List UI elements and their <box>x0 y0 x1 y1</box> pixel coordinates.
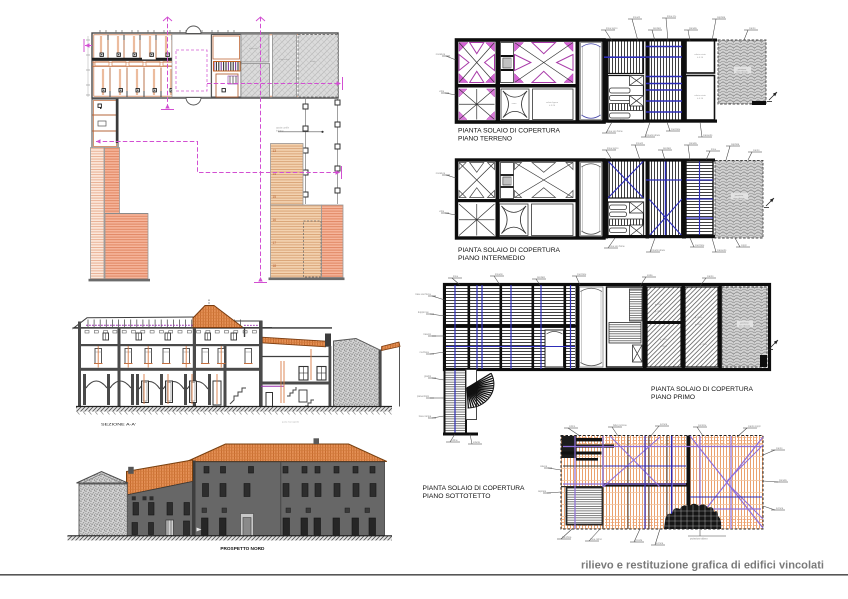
svg-text:mezzane: mezzane <box>577 274 587 276</box>
svg-text:pianerottolo: pianerottolo <box>417 395 430 398</box>
svg-text:trave uso fiume: trave uso fiume <box>607 130 623 133</box>
svg-text:doppio tav.: doppio tav. <box>418 311 429 314</box>
svg-text:p. 25%: p. 25% <box>660 346 667 348</box>
svg-text:fienile: fienile <box>310 61 316 63</box>
svg-text:pianelle: pianelle <box>689 28 698 30</box>
svg-text:solaio misto: solaio misto <box>694 53 706 56</box>
svg-text:banchina: banchina <box>562 537 572 539</box>
svg-text:massetto: massetto <box>717 249 727 252</box>
svg-text:quota marciapiede: quota marciapiede <box>282 421 300 424</box>
svg-text:trave: trave <box>711 148 717 151</box>
svg-text:manto: manto <box>753 149 760 152</box>
svg-text:gronda: gronda <box>635 539 643 542</box>
svg-text:travetti: travetti <box>636 142 643 145</box>
svg-text:non rilevato: non rilevato <box>736 71 748 74</box>
svg-text:PROSPETTO NORD: PROSPETTO NORD <box>220 546 265 551</box>
svg-text:porzione: porzione <box>738 68 747 71</box>
svg-text:volta: volta <box>439 90 445 93</box>
svg-text:p. 25%: p. 25% <box>655 304 662 306</box>
svg-text:manto coppi: manto coppi <box>748 425 761 428</box>
svg-text:PIANTA SOLAIO DI COPERTURA: PIANTA SOLAIO DI COPERTURA <box>651 386 754 393</box>
svg-text:travetto: travetto <box>495 273 503 276</box>
svg-text:pianelle: pianelle <box>779 480 788 482</box>
svg-text:manto: manto <box>749 27 756 30</box>
svg-text:tavolato: tavolato <box>653 27 662 30</box>
svg-text:PIANO PRIMO: PIANO PRIMO <box>651 394 695 401</box>
svg-text:puntone: puntone <box>698 424 707 427</box>
svg-text:13: 13 <box>273 149 277 153</box>
svg-text:terzera: terzera <box>660 423 668 426</box>
svg-text:trave: trave <box>453 275 459 278</box>
svg-text:non rilevato: non rilevato <box>733 197 745 200</box>
svg-text:p. 25%: p. 25% <box>700 344 707 346</box>
svg-text:travetto abete: travetto abete <box>646 134 661 137</box>
svg-text:p. 25%: p. 25% <box>655 311 662 313</box>
svg-text:PIANO TERRENO: PIANO TERRENO <box>458 136 512 143</box>
svg-text:trave legno: trave legno <box>606 27 618 30</box>
svg-text:capriata: capriata <box>717 16 726 19</box>
svg-text:proiezione albero: proiezione albero <box>690 538 708 541</box>
svg-text:non rilevato: non rilevato <box>739 324 751 327</box>
svg-text:mezzane: mezzane <box>695 245 705 247</box>
svg-text:scala: scala <box>647 275 653 277</box>
svg-text:trave uso fiume: trave uso fiume <box>609 245 625 248</box>
svg-text:massetto: massetto <box>703 134 713 137</box>
svg-text:travetti: travetti <box>633 16 640 19</box>
svg-text:muratura: muratura <box>436 53 446 56</box>
svg-text:muratura: muratura <box>436 172 446 175</box>
svg-text:travetto abete: travetto abete <box>651 249 666 252</box>
svg-text:gradini: gradini <box>424 375 431 378</box>
svg-text:h 4.10: h 4.10 <box>697 57 704 59</box>
svg-text:trave uso fiume: trave uso fiume <box>415 293 431 296</box>
svg-text:p. 25%: p. 25% <box>660 339 667 341</box>
svg-text:16: 16 <box>273 218 277 222</box>
svg-text:travetto: travetto <box>423 333 431 336</box>
svg-text:trave colmo: trave colmo <box>590 538 603 541</box>
svg-text:trave rampa: trave rampa <box>419 415 432 418</box>
svg-text:trave rov.: trave rov. <box>667 15 677 18</box>
svg-text:porzione: porzione <box>740 322 749 325</box>
svg-text:vano: vano <box>512 103 518 105</box>
svg-text:p. 25%: p. 25% <box>695 317 702 319</box>
svg-text:18: 18 <box>273 264 277 268</box>
svg-text:h 3.20: h 3.20 <box>549 105 556 107</box>
svg-text:PIANTA SOLAIO DI COPERTURA: PIANTA SOLAIO DI COPERTURA <box>458 128 561 135</box>
svg-text:soletta: soletta <box>473 441 480 444</box>
svg-text:deposito: deposito <box>249 47 258 50</box>
svg-text:PIANO SOTTOTETTO: PIANO SOTTOTETTO <box>423 493 491 500</box>
svg-text:falso puntone: falso puntone <box>613 424 628 427</box>
svg-text:manto: manto <box>707 275 714 278</box>
svg-text:manto: manto <box>776 447 783 450</box>
svg-text:pianelle: pianelle <box>689 143 698 145</box>
svg-text:coppi: coppi <box>741 245 747 247</box>
svg-text:PIANTA SOLAIO DI COPERTURA: PIANTA SOLAIO DI COPERTURA <box>458 247 561 254</box>
svg-text:volta: volta <box>439 210 445 213</box>
svg-text:porzione: porzione <box>735 194 744 197</box>
svg-text:capriata: capriata <box>538 490 547 493</box>
svg-text:tavolato: tavolato <box>537 276 546 279</box>
svg-text:15: 15 <box>273 195 277 199</box>
svg-text:PIANTA SOLAIO DI COPERTURA: PIANTA SOLAIO DI COPERTURA <box>423 485 526 492</box>
svg-text:solaio misto: solaio misto <box>694 94 706 97</box>
svg-text:terzera: terzera <box>776 507 784 510</box>
svg-text:solaio ligneo: solaio ligneo <box>546 102 559 104</box>
svg-text:rilievo e restituzione grafica: rilievo e restituzione grafica di edific… <box>581 560 824 572</box>
svg-text:h 4.10: h 4.10 <box>697 98 704 100</box>
svg-text:SEZIONE A-A': SEZIONE A-A' <box>101 422 136 427</box>
svg-text:colmo: colmo <box>569 426 576 428</box>
svg-text:terzera: terzera <box>656 542 664 545</box>
svg-text:voltine: voltine <box>451 439 458 442</box>
svg-text:magazzino: magazzino <box>279 59 290 61</box>
svg-text:trave legno: trave legno <box>607 147 619 150</box>
svg-text:PIANO INTERMEDIO: PIANO INTERMEDIO <box>458 255 525 262</box>
svg-text:17: 17 <box>273 241 277 245</box>
svg-text:catena: catena <box>540 465 548 468</box>
svg-text:p. 25%: p. 25% <box>695 324 702 326</box>
svg-text:tavolato: tavolato <box>663 147 672 150</box>
svg-text:mezzane: mezzane <box>420 352 430 354</box>
svg-text:capriata: capriata <box>731 143 740 146</box>
svg-text:mezzane: mezzane <box>671 129 681 131</box>
